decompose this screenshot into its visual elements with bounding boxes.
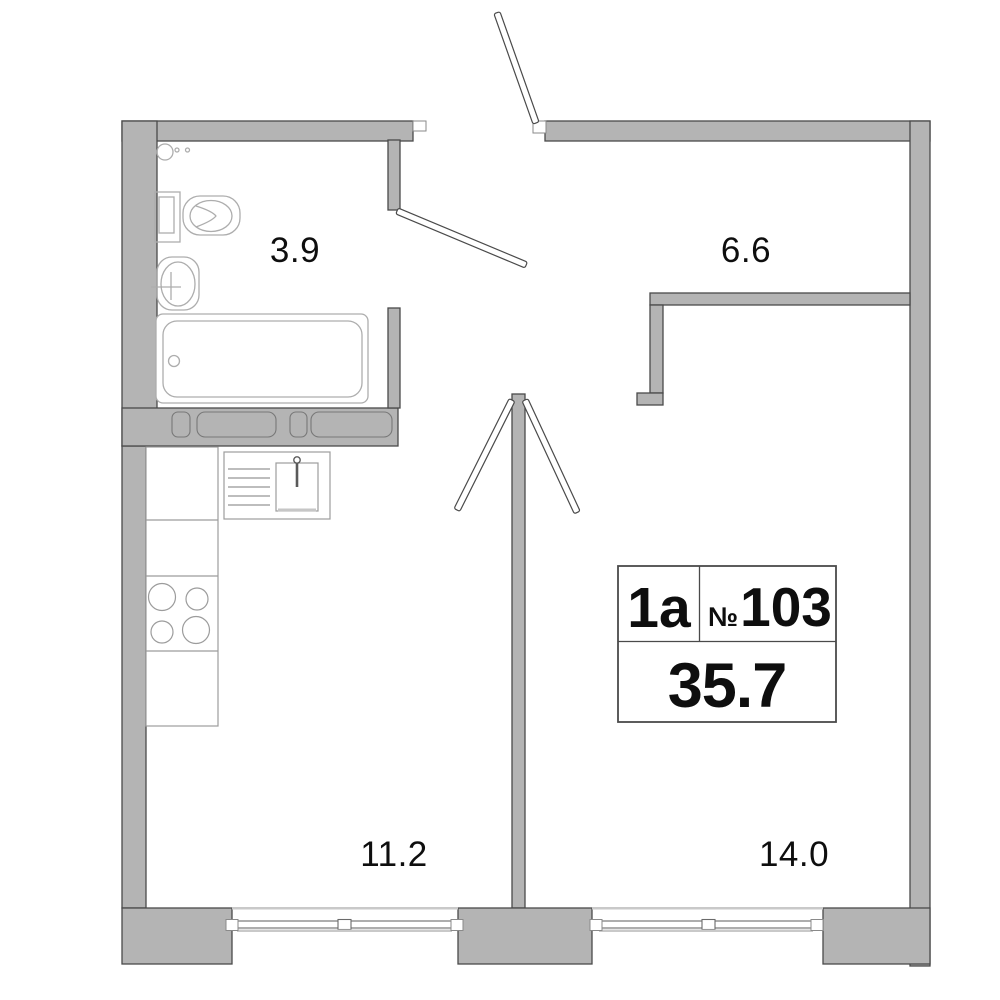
wall-hallway-room-foot <box>637 393 663 405</box>
bathroom-area-label: 3.9 <box>270 231 320 270</box>
floor-plan-page: 3.9 6.6 11.2 14.0 1a №103 35.7 <box>0 0 1000 1000</box>
bathroom-door-leaf <box>396 208 528 268</box>
entrance-door-leaf <box>494 12 539 124</box>
total-area-label: 35.7 <box>668 651 787 721</box>
kitchen-door-leaf <box>454 399 515 512</box>
bathtub-symbol <box>156 314 368 403</box>
small-dot-symbol <box>175 148 179 152</box>
wall-bathroom-east-lower <box>388 308 400 408</box>
wall-bottom-pillar-middle <box>458 908 592 964</box>
window-jamb-left <box>226 920 238 931</box>
kitchen-counter <box>146 447 218 726</box>
wall-hallway-room-vertical <box>650 305 663 393</box>
floor-plan-drawing: 3.9 6.6 11.2 14.0 1a №103 35.7 <box>0 0 1000 1000</box>
wall-partition-kitchen-room <box>512 394 525 908</box>
unit-info-box: 1a №103 35.7 <box>618 566 836 722</box>
window-inner-face-line <box>592 907 823 910</box>
duct-small-2 <box>290 412 307 437</box>
hallway-area-label: 6.6 <box>721 231 771 270</box>
ceiling-symbol <box>157 144 173 160</box>
wall-top-right <box>545 121 930 141</box>
duct-small-1 <box>172 412 190 437</box>
living-room-door-leaf <box>522 399 580 514</box>
unit-type-label: 1a <box>627 576 692 640</box>
number-sign: № <box>708 602 738 632</box>
wall-bottom-pillar-left <box>122 908 232 964</box>
faucet-icon <box>294 457 300 463</box>
kitchen-fixtures <box>146 447 330 726</box>
living-room-area-label: 14.0 <box>759 835 829 874</box>
window-jamb-left <box>590 920 602 931</box>
duct-large-2 <box>311 412 392 437</box>
kitchen-sink-symbol <box>224 452 330 519</box>
washbasin-symbol <box>151 257 199 310</box>
window-sill-line <box>599 930 813 933</box>
unit-number: 103 <box>740 576 832 638</box>
window-mullion <box>702 920 715 930</box>
wall-hallway-room-horizontal <box>650 293 910 305</box>
wall-right <box>910 121 930 966</box>
window-jamb-right <box>811 920 823 931</box>
wall-top-left <box>122 121 413 141</box>
window-mullion <box>338 920 351 930</box>
window-kitchen <box>226 907 463 932</box>
window-living-room <box>590 907 823 932</box>
entrance-jamb-left <box>413 121 426 131</box>
doors <box>396 12 580 514</box>
small-dot-symbol <box>186 148 190 152</box>
wall-bathroom-east-stub <box>388 140 400 210</box>
window-jamb-right <box>451 920 463 931</box>
window-inner-face-line <box>232 907 458 910</box>
duct-large-1 <box>197 412 276 437</box>
toilet-symbol <box>155 192 240 242</box>
bathroom-fixtures <box>151 144 368 403</box>
wall-left-upper <box>122 121 157 446</box>
wall-left-lower <box>122 446 146 908</box>
wall-bottom-pillar-right <box>823 908 930 964</box>
window-sill-line <box>237 930 452 933</box>
kitchen-area-label: 11.2 <box>360 835 428 874</box>
